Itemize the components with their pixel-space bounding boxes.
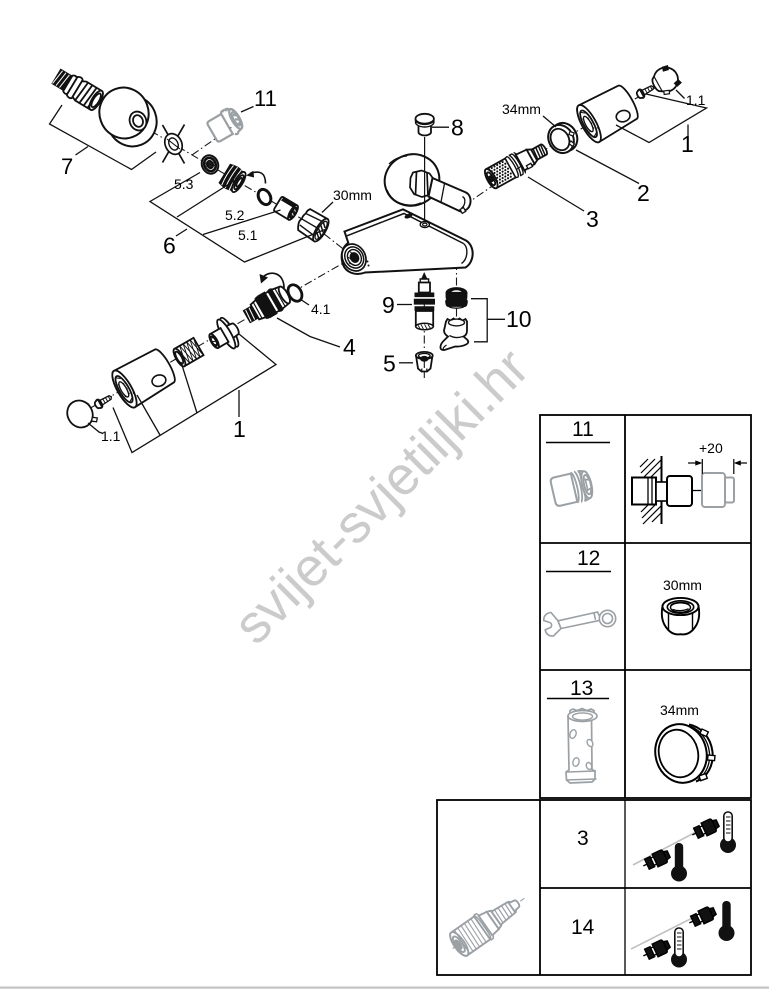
svg-text:34mm: 34mm (660, 702, 699, 718)
svg-text:11: 11 (254, 86, 277, 111)
svg-text:2: 2 (637, 180, 650, 206)
svg-text:1: 1 (233, 416, 246, 442)
svg-text:3: 3 (577, 827, 589, 850)
svg-text:1.1: 1.1 (101, 428, 121, 444)
svg-text:4.1: 4.1 (311, 301, 331, 317)
svg-text:3: 3 (586, 206, 599, 232)
svg-text:9: 9 (382, 292, 395, 318)
svg-text:12: 12 (577, 547, 600, 570)
svg-text:5: 5 (383, 351, 396, 377)
svg-text:1.1: 1.1 (686, 92, 706, 108)
svg-text:5.2: 5.2 (225, 207, 245, 223)
svg-text:7: 7 (61, 154, 73, 179)
svg-text:30mm: 30mm (663, 577, 702, 593)
svg-text:10: 10 (506, 306, 532, 332)
svg-text:5.1: 5.1 (238, 227, 258, 243)
svg-text:14: 14 (571, 916, 595, 939)
svg-text:1: 1 (681, 131, 694, 157)
svg-text:30mm: 30mm (333, 187, 372, 203)
svg-text:34mm: 34mm (502, 101, 541, 117)
svg-text:13: 13 (570, 677, 593, 700)
svg-text:8: 8 (451, 115, 464, 141)
svg-text:5.3: 5.3 (174, 176, 194, 192)
svg-text:11: 11 (572, 418, 594, 441)
svg-text:+20: +20 (699, 440, 723, 456)
svg-text:6: 6 (163, 233, 176, 259)
svg-text:4: 4 (343, 334, 356, 360)
